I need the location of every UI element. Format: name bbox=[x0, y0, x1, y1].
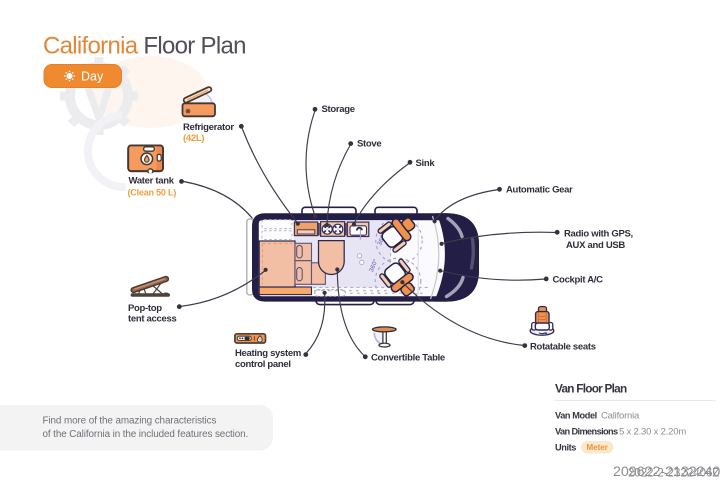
svg-text:2022-2-2322406Z: 2022-2-2322406Z bbox=[628, 468, 719, 480]
svg-text:(Clean 50 L): (Clean 50 L) bbox=[128, 188, 177, 198]
svg-text:Radio with GPS,: Radio with GPS, bbox=[564, 229, 633, 240]
svg-text:Heating system: Heating system bbox=[235, 348, 301, 359]
svg-text:California Floor Plan: California Floor Plan bbox=[43, 33, 246, 60]
svg-text:Cockpit A/C: Cockpit A/C bbox=[553, 275, 604, 286]
svg-text:Meter: Meter bbox=[587, 443, 608, 452]
svg-text:control panel: control panel bbox=[235, 359, 291, 370]
svg-text:Convertible Table: Convertible Table bbox=[371, 353, 445, 364]
svg-text:Pop-top: Pop-top bbox=[128, 303, 162, 314]
svg-text:Stove: Stove bbox=[357, 139, 381, 150]
svg-text:(42L): (42L) bbox=[183, 133, 204, 144]
svg-text:Automatic Gear: Automatic Gear bbox=[506, 185, 573, 196]
svg-text:Units: Units bbox=[555, 443, 576, 453]
svg-text:AUX and USB: AUX and USB bbox=[566, 240, 625, 251]
svg-text:Find more of the amazing chara: Find more of the amazing characteristics bbox=[43, 416, 217, 427]
svg-text:5 x 2.30 x 2.20m: 5 x 2.30 x 2.20m bbox=[619, 427, 686, 438]
svg-text:California: California bbox=[601, 411, 640, 422]
svg-text:Rotatable seats: Rotatable seats bbox=[530, 342, 596, 353]
svg-text:Sink: Sink bbox=[416, 158, 436, 169]
svg-text:tent access: tent access bbox=[128, 314, 176, 325]
svg-text:Van Model: Van Model bbox=[555, 411, 597, 421]
svg-text:Refrigerator: Refrigerator bbox=[183, 122, 234, 133]
svg-text:Water tank: Water tank bbox=[129, 176, 175, 187]
svg-text:Van Dimensions: Van Dimensions bbox=[555, 427, 618, 437]
svg-text:Storage: Storage bbox=[322, 104, 355, 115]
svg-text:Day: Day bbox=[81, 70, 104, 84]
svg-text:of the California in the inclu: of the California in the included featur… bbox=[43, 429, 249, 440]
svg-text:Van Floor Plan: Van Floor Plan bbox=[555, 382, 627, 396]
